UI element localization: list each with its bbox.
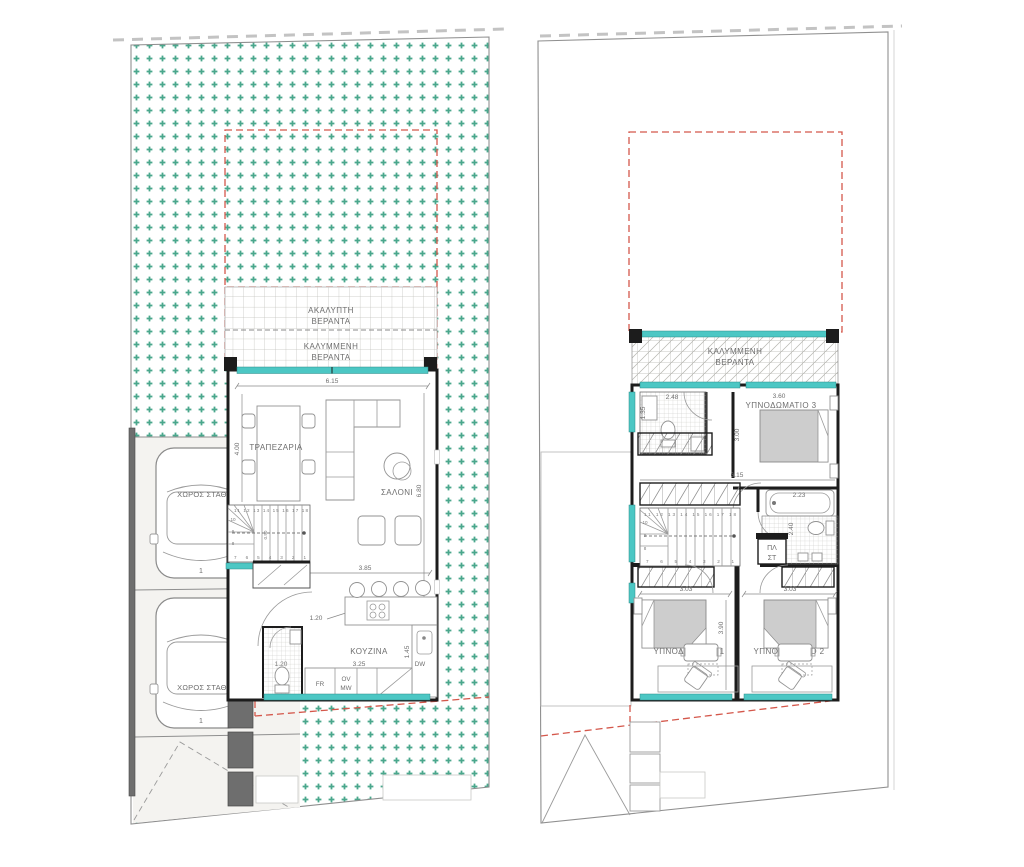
balcony: ΚΑΛΥΜΜΕΝΗ ΒΕΡΑΝΤΑ bbox=[629, 329, 839, 385]
bar-stool-2 bbox=[372, 582, 387, 597]
laundry-closet: ΠΛ ΣΤ bbox=[756, 533, 788, 564]
wc-toilet-tank bbox=[275, 685, 289, 693]
uncovered-veranda-label-2: ΒΕΡΑΝΤΑ bbox=[312, 317, 351, 326]
dim-shower-depth: 1.35 bbox=[640, 406, 647, 419]
balcony-post-left bbox=[629, 329, 642, 343]
kitchen-label: ΚΟΥΖΙΝΑ bbox=[350, 647, 388, 656]
dim-bath-width: 2.23 bbox=[793, 492, 806, 499]
fridge-label: FR bbox=[316, 681, 325, 688]
nightstand-3a bbox=[830, 396, 838, 410]
covered-veranda-ff-label-1: ΚΑΛΥΜΜΕΝΗ bbox=[708, 347, 763, 356]
dim-stair-width: 0.90 bbox=[263, 530, 268, 539]
armchair-2 bbox=[395, 516, 421, 545]
path-patch-2 bbox=[660, 772, 705, 798]
closet-1 bbox=[638, 433, 712, 455]
balcony-post-right bbox=[826, 329, 839, 343]
dim-counter-depth: 1.45 bbox=[404, 645, 411, 658]
living-label: ΣΑΛΟΝΙ bbox=[381, 488, 413, 497]
desk-chair-2 bbox=[778, 644, 812, 661]
ff-stair-number-10: 10 bbox=[642, 520, 648, 525]
covered-veranda-ff-label-2: ΒΕΡΑΝΤΑ bbox=[716, 358, 755, 367]
balcony-rail bbox=[642, 331, 828, 337]
closet-2 bbox=[640, 483, 740, 505]
microwave-label: MW bbox=[340, 685, 351, 692]
dim-bedroom2-width: 3.03 bbox=[784, 586, 797, 593]
uncovered-veranda-label-1: ΑΚΑΛΥΠΤΗ bbox=[308, 306, 354, 315]
bedroom2-window-band bbox=[744, 694, 832, 700]
dim-bedroom1-width: 3.03 bbox=[680, 586, 693, 593]
exterior-steps bbox=[630, 722, 660, 811]
nightstand-2 bbox=[828, 598, 836, 614]
dishwasher-label: DW bbox=[415, 661, 426, 668]
ff-left-window-2 bbox=[629, 505, 635, 562]
covered-veranda-label-2: ΒΕΡΑΝΤΑ bbox=[312, 353, 351, 362]
staircase: 11 12 13 14 15 16 17 18 10 9 8 7 6 5 4 3… bbox=[228, 505, 310, 562]
floor-plans-drawing: 1 1 ΧΩΡΟΣ ΣΤΑΘΜΕΥΣΗΣ ΧΩΡΟΣ ΣΤΑΘΜΕΥΣΗΣ ΑΚ… bbox=[0, 0, 1024, 867]
stair-numbers-top: 11 12 13 14 15 16 17 18 bbox=[234, 508, 308, 513]
wc-room bbox=[263, 627, 302, 697]
bar-stool-1 bbox=[350, 583, 365, 598]
nightstand-3b bbox=[830, 464, 838, 478]
dim-bedroom3-width: 3.60 bbox=[773, 393, 786, 400]
ff-stair-numbers-top: 11 12 13 14 15 16 17 18 bbox=[644, 512, 736, 517]
wc-sink bbox=[290, 630, 301, 644]
dim-bedrooms-depth: 3.90 bbox=[718, 621, 725, 634]
ff-top-glazing-1 bbox=[640, 382, 740, 388]
desk-chair-1 bbox=[684, 644, 718, 661]
first-floor-plan: ΚΑΛΥΜΜΕΝΗ ΒΕΡΑΝΤΑ 2.48 bbox=[538, 26, 902, 823]
ff-top-glazing-2 bbox=[746, 382, 836, 388]
oven-label: OV bbox=[341, 676, 351, 683]
stair-number-10: 10 bbox=[230, 517, 236, 522]
covered-veranda-label-1: ΚΑΛΥΜΜΕΝΗ bbox=[304, 342, 359, 351]
bathroom-toilet bbox=[808, 522, 824, 535]
ground-floor-plan: 1 1 ΧΩΡΟΣ ΣΤΑΘΜΕΥΣΗΣ ΧΩΡΟΣ ΣΤΑΘΜΕΥΣΗΣ ΑΚ… bbox=[113, 29, 505, 824]
dim-counter-width: 3.25 bbox=[353, 661, 366, 668]
armchair-1 bbox=[358, 516, 385, 545]
stair-number-8: 8 bbox=[232, 541, 235, 546]
stair-number-9: 9 bbox=[232, 529, 235, 534]
bedroom1-window-band bbox=[640, 694, 732, 700]
wc-toilet bbox=[275, 667, 289, 685]
kitchen-window-band bbox=[264, 694, 430, 700]
dim-bath-depth: 2.40 bbox=[788, 522, 795, 535]
veranda-zone: ΑΚΑΛΥΠΤΗ ΒΕΡΑΝΤΑ ΚΑΛΥΜΜΕΝΗ ΒΕΡΑΝΤΑ bbox=[225, 287, 437, 370]
ff-stair-number-9: 9 bbox=[644, 533, 647, 538]
dim-top-width: 6.15 bbox=[326, 378, 339, 385]
floor-plan-sheet: 1 1 ΧΩΡΟΣ ΣΤΑΘΜΕΥΣΗΣ ΧΩΡΟΣ ΣΤΑΘΜΕΥΣΗΣ ΑΚ… bbox=[0, 0, 1024, 867]
laundry-label-2: ΣΤ bbox=[768, 555, 777, 562]
dim-hall-width: 1.20 bbox=[310, 615, 323, 622]
column-left bbox=[224, 357, 237, 371]
window-right-wall-2 bbox=[435, 580, 440, 594]
laundry-label-1: ΠΛ bbox=[767, 545, 777, 552]
neighbor-area-outline bbox=[541, 452, 631, 706]
ff-stair-number-8: 8 bbox=[644, 546, 647, 551]
car-1-number: 1 bbox=[199, 568, 203, 575]
dim-interior-width: 6.15 bbox=[731, 472, 744, 479]
entry-path-patch bbox=[256, 776, 298, 803]
dim-shower-width: 2.48 bbox=[666, 394, 679, 401]
bar-stool-4 bbox=[416, 581, 431, 596]
dining-label: ΤΡΑΠΕΖΑΡΙΑ bbox=[249, 443, 302, 452]
stair-window bbox=[226, 563, 254, 569]
dim-living-depth: 6.80 bbox=[416, 484, 423, 497]
dim-kitchen-zone: 3.85 bbox=[359, 565, 372, 572]
bedroom3-label: ΥΠΝΟΔΩΜΑΤΙΟ 3 bbox=[746, 401, 817, 410]
bar-stool-3 bbox=[394, 582, 409, 597]
garden-path-patch bbox=[383, 775, 471, 800]
dim-bedroom3-depth: 3.00 bbox=[734, 428, 741, 441]
window-right-wall-1 bbox=[435, 450, 440, 464]
dim-dining-depth: 4.00 bbox=[234, 442, 241, 455]
wardrobe-bedroom1 bbox=[638, 567, 714, 587]
wardrobe-bedroom2 bbox=[782, 567, 834, 587]
street-boundary-wall bbox=[129, 428, 135, 796]
kitchen-island bbox=[345, 597, 437, 625]
ff-left-window-1 bbox=[629, 392, 635, 432]
car-2-number: 1 bbox=[199, 718, 203, 725]
nightstand-1 bbox=[634, 598, 642, 614]
staircase-first-floor: 11 12 13 14 15 16 17 18 10 9 8 7 6 5 4 3… bbox=[640, 508, 740, 566]
